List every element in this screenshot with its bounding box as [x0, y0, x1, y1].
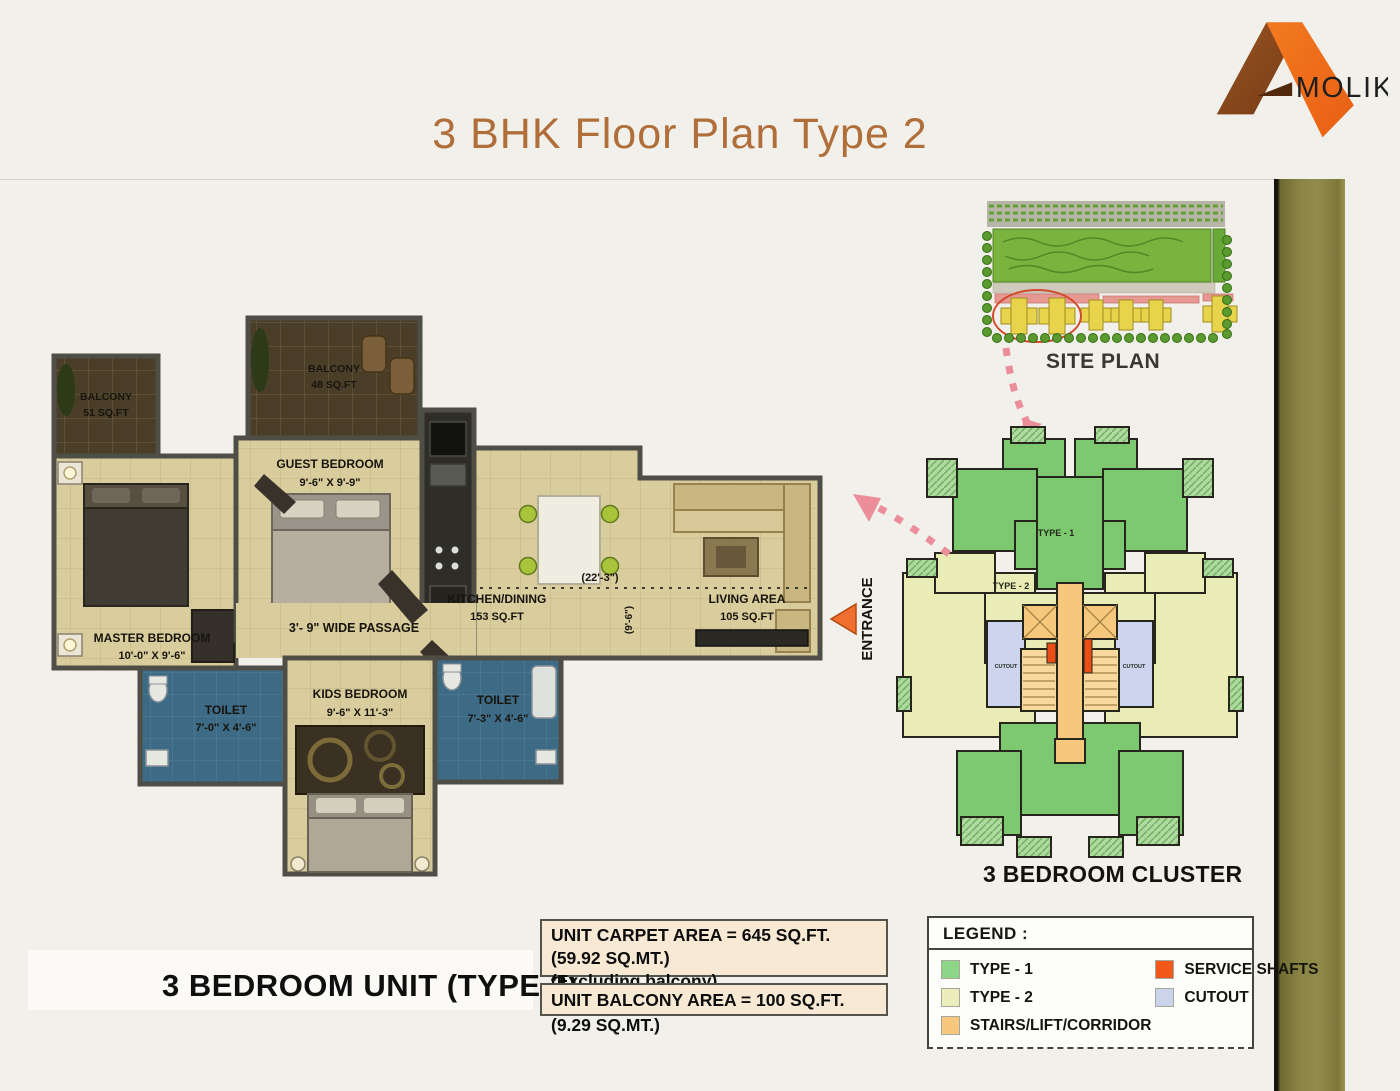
floor-plan: BALCONY 51 SQ.FT BALCONY 48 SQ.FT MASTER… — [40, 298, 885, 890]
carpet-area-text: UNIT CARPET AREA = 645 SQ.FT. (59.92 SQ.… — [551, 924, 877, 970]
toilet-left-name: TOILET — [205, 703, 248, 717]
legend-item-label: TYPE - 1 — [970, 961, 1033, 979]
kitchen-dining-name: KITCHEN/DINING — [448, 592, 547, 606]
site-plan-label: SITE PLAN — [1046, 350, 1160, 374]
legend-item-label: SERVICE SHAFTS — [1184, 961, 1318, 979]
type2-swatch — [941, 988, 960, 1007]
entrance-marker — [831, 604, 856, 634]
living-area-size: 105 SQ.FT — [720, 611, 774, 623]
service-shafts-swatch — [1155, 960, 1174, 979]
depth-dimension: (9'-6") — [624, 606, 635, 634]
guest-bedroom-size: 9'-6" X 9'-9" — [300, 477, 361, 489]
brand-logo-icon: MOLIK — [1200, 4, 1388, 142]
balcony-left-name: BALCONY — [80, 391, 132, 403]
balcony-top-room — [248, 318, 420, 438]
cluster-cutout-right-label: CUTOUT — [1123, 664, 1146, 670]
legend-item-stairs: STAIRS/LIFT/CORRIDOR — [941, 1016, 1151, 1035]
toilet-right-name: TOILET — [477, 693, 520, 707]
legend-title: LEGEND : — [929, 918, 1252, 950]
cluster-to-plan-arrow — [845, 478, 953, 566]
scan-rule — [0, 179, 1274, 180]
cutout-swatch — [1155, 988, 1174, 1007]
balcony-top-name: BALCONY — [308, 363, 360, 375]
legend-item-label: STAIRS/LIFT/CORRIDOR — [970, 1017, 1151, 1035]
kids-bedroom-size: 9'-6" X 11'-3" — [327, 707, 393, 719]
carpet-area-box: UNIT CARPET AREA = 645 SQ.FT. (59.92 SQ.… — [540, 919, 888, 977]
balcony-top-size: 48 SQ.FT — [311, 379, 357, 391]
cluster-cutout-left-label: CUTOUT — [995, 664, 1018, 670]
legend-item-type1: TYPE - 1 — [941, 960, 1151, 979]
cluster-type1-label: TYPE - 1 — [1038, 528, 1075, 538]
master-bedroom-name: MASTER BEDROOM — [94, 631, 211, 645]
balcony-left-size: 51 SQ.FT — [83, 407, 129, 419]
legend-item-label: TYPE - 2 — [970, 989, 1033, 1007]
brand-name: MOLIK — [1296, 72, 1388, 104]
kitchen-dining-size: 153 SQ.FT — [470, 611, 524, 623]
master-bedroom-size: 10'-0" X 9'-6" — [118, 650, 185, 662]
site-plan — [975, 196, 1240, 348]
page-title: 3 BHK Floor Plan Type 2 — [395, 110, 965, 159]
toilet-left-size: 7'-0" X 4'-6" — [196, 722, 257, 734]
stairs-swatch — [941, 1016, 960, 1035]
legend-body: TYPE - 1 SERVICE SHAFTS TYPE - 2 CUTOUT … — [929, 950, 1252, 1047]
legend-item-label: CUTOUT — [1184, 989, 1248, 1007]
legend-item-type2: TYPE - 2 — [941, 988, 1151, 1007]
kids-bedroom-name: KIDS BEDROOM — [313, 687, 408, 701]
cluster-type2-label: TYPE - 2 — [993, 581, 1030, 591]
width-dimension: (22'-3") — [581, 572, 619, 584]
cluster-label: 3 BEDROOM CLUSTER — [983, 861, 1242, 888]
entrance-label: ENTRANCE — [859, 577, 876, 660]
toilet-right-size: 7'-3" X 4'-6" — [468, 713, 529, 725]
unit-type-label: 3 BEDROOM UNIT (TYPE 2) — [162, 968, 578, 1004]
site-plan-park — [993, 229, 1225, 282]
legend-item-cutout: CUTOUT — [1155, 988, 1318, 1007]
arrowhead-icon — [853, 494, 881, 522]
brand-logo: MOLIK — [1200, 4, 1388, 142]
balcony-area-box: UNIT BALCONY AREA = 100 SQ.FT. (9.29 SQ.… — [540, 983, 888, 1016]
open-living-area — [474, 448, 820, 658]
decorative-side-bar — [1274, 179, 1345, 1091]
type1-bottom-balconies — [961, 817, 1179, 857]
passage-label: 3'- 9" WIDE PASSAGE — [289, 621, 419, 635]
legend: LEGEND : TYPE - 1 SERVICE SHAFTS TYPE - … — [927, 916, 1254, 1049]
site-to-cluster-arrow — [990, 344, 1050, 436]
type1-swatch — [941, 960, 960, 979]
legend-item-service-shafts: SERVICE SHAFTS — [1155, 960, 1318, 979]
guest-bedroom-name: GUEST BEDROOM — [276, 457, 383, 471]
balcony-area-text: UNIT BALCONY AREA = 100 SQ.FT. (9.29 SQ.… — [551, 988, 877, 1039]
living-area-name: LIVING AREA — [709, 592, 786, 606]
